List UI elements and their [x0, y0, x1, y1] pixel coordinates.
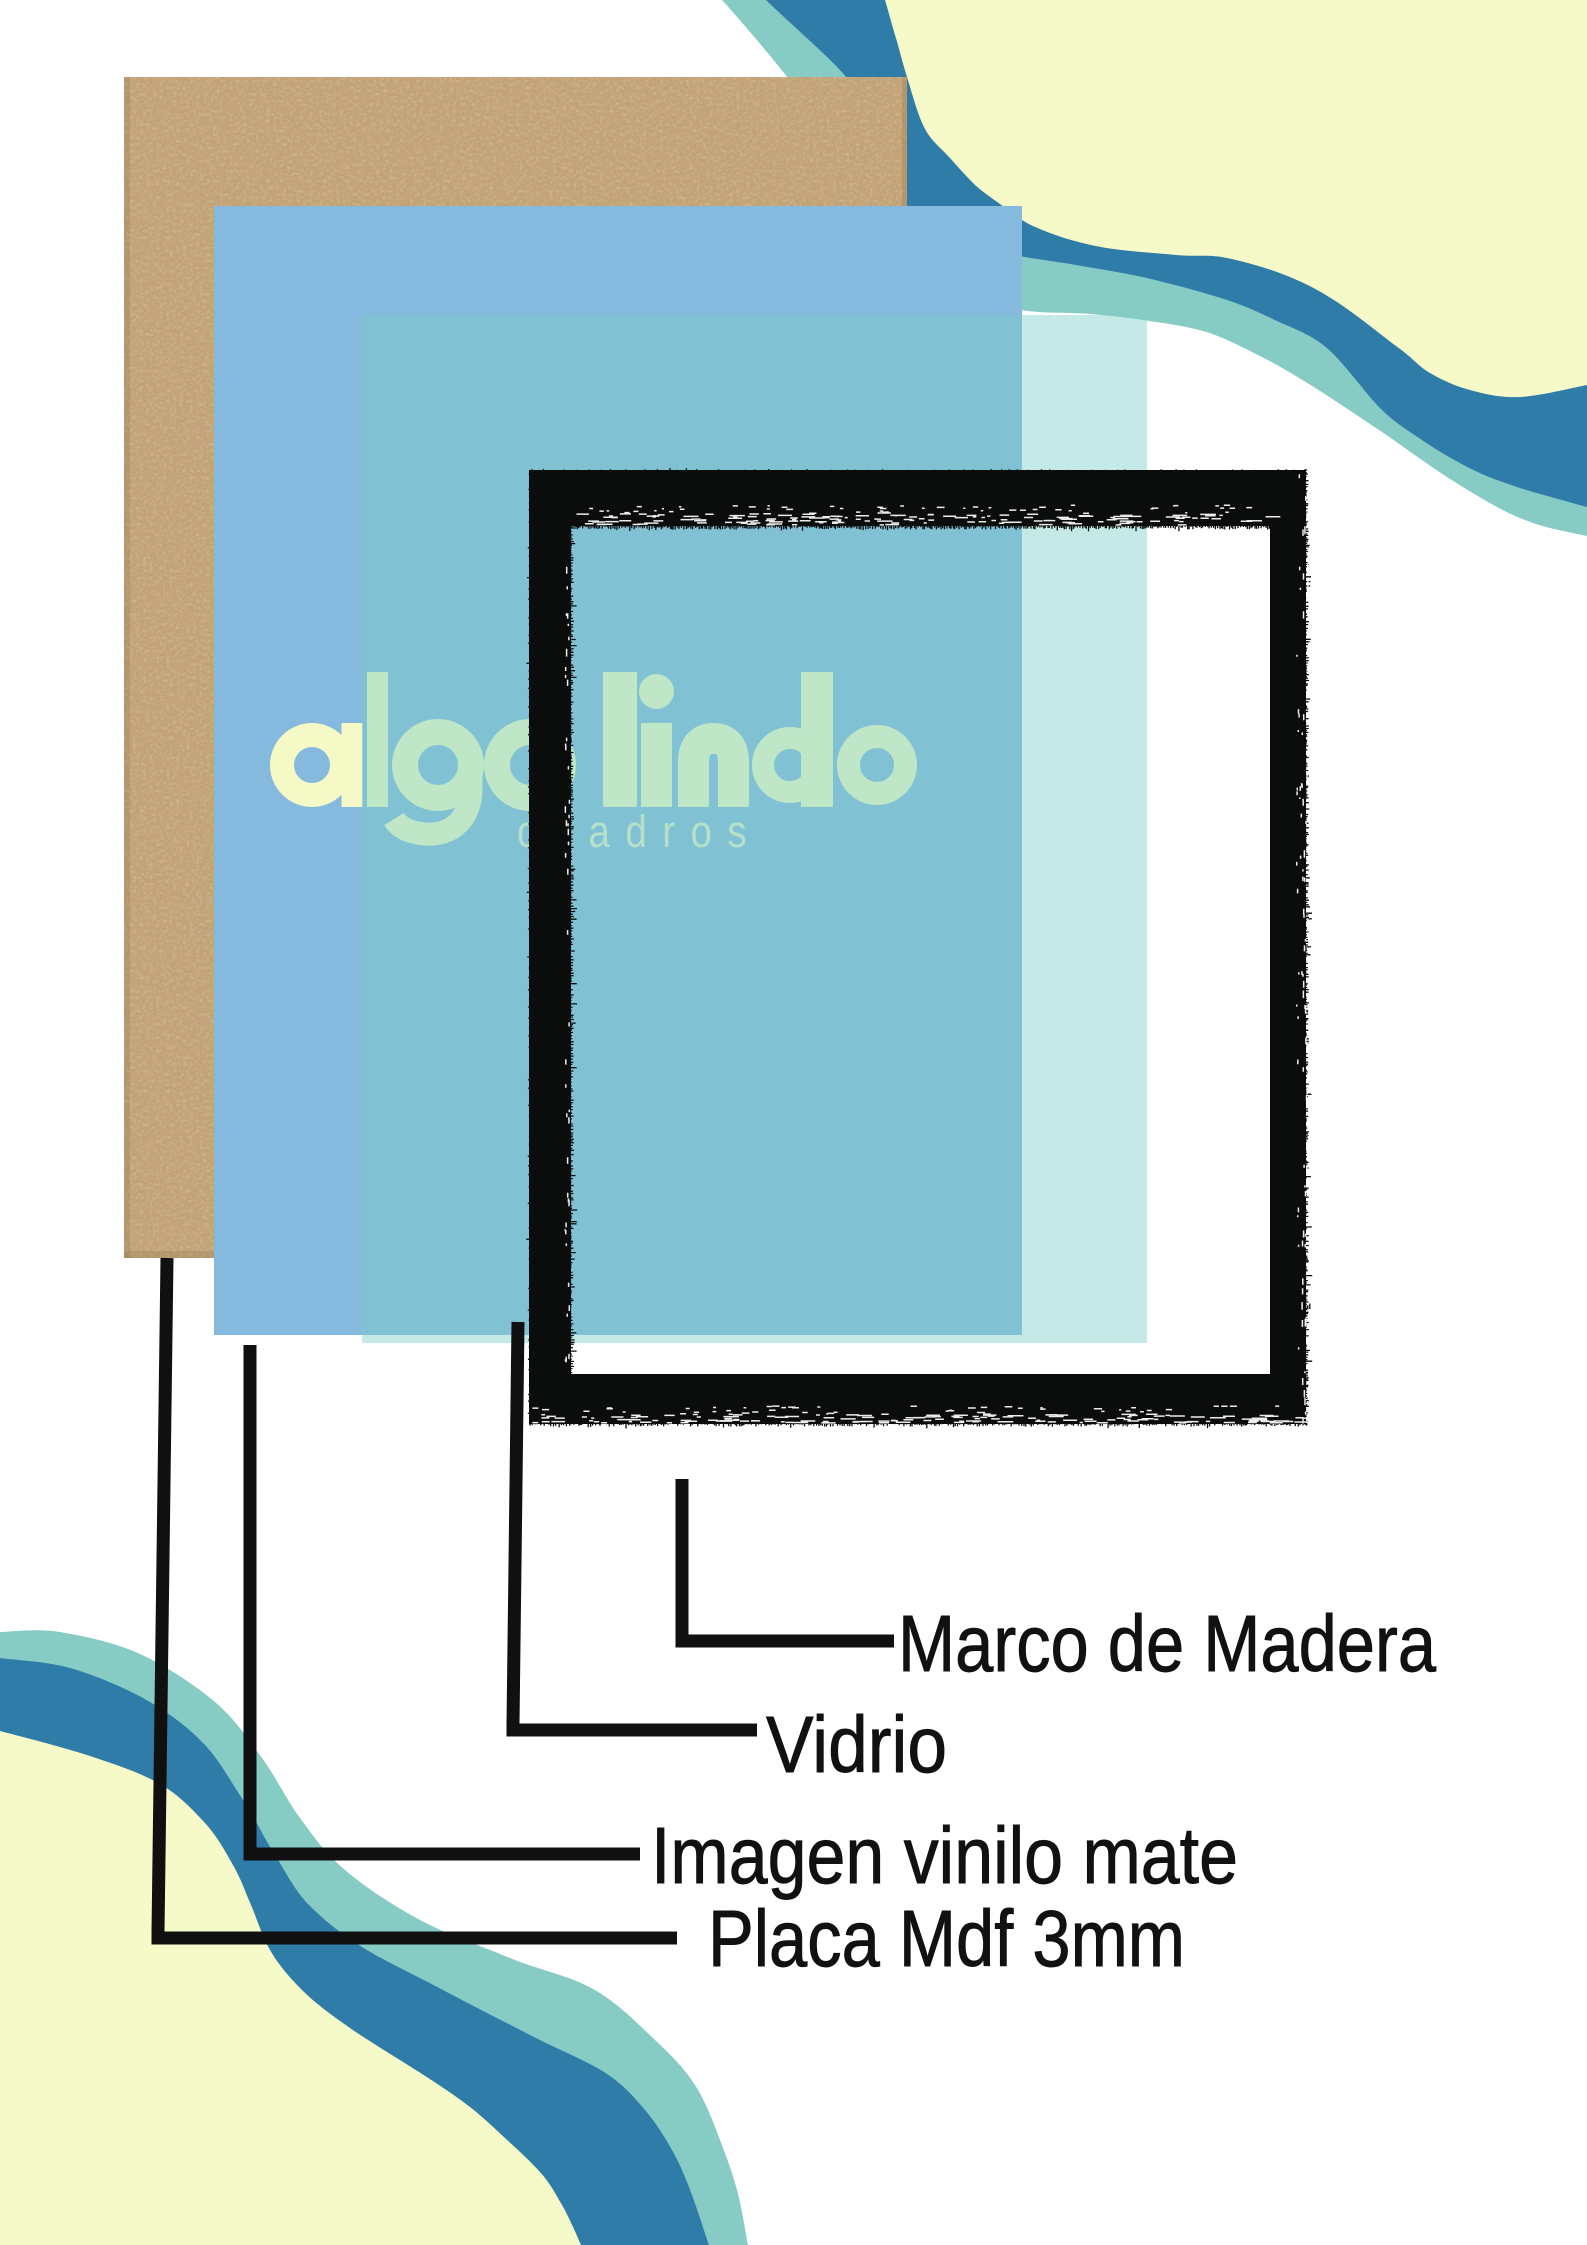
svg-text:Imagen vinilo mate: Imagen vinilo mate — [651, 1811, 1238, 1900]
svg-text:Vidrio: Vidrio — [766, 1700, 947, 1789]
svg-text:Marco de Madera: Marco de Madera — [898, 1599, 1436, 1688]
svg-text:Placa Mdf 3mm: Placa Mdf 3mm — [708, 1894, 1185, 1983]
